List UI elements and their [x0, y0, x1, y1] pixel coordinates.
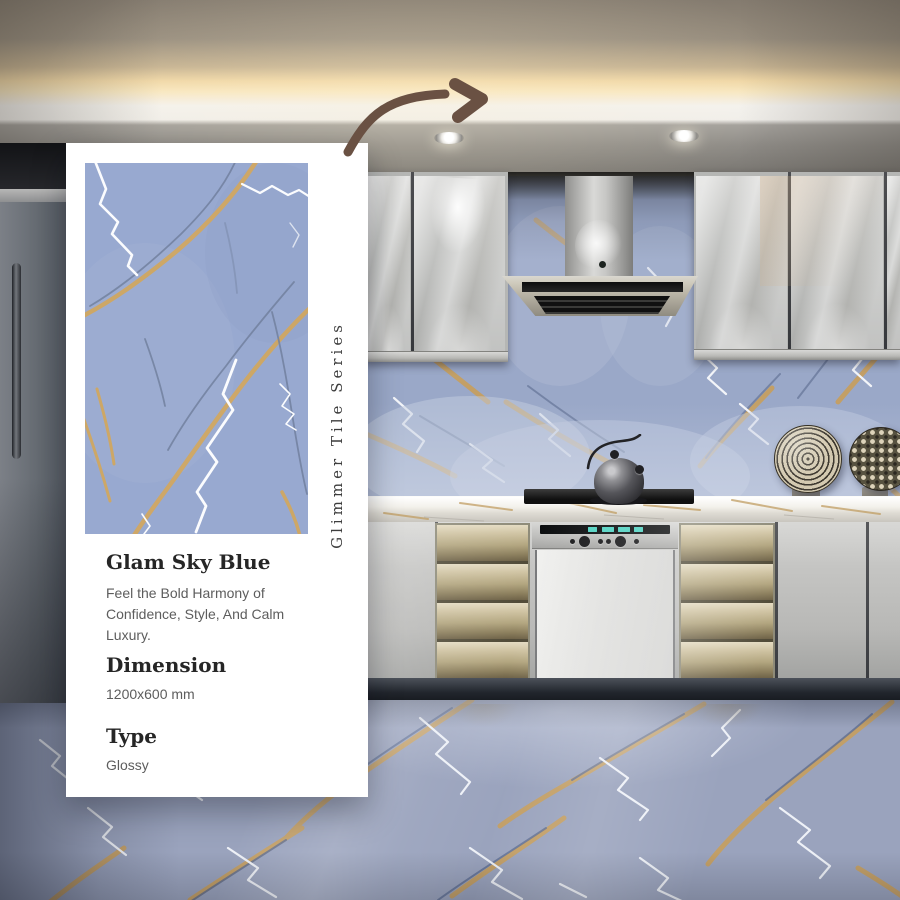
- fridge-handle: [12, 263, 21, 459]
- product-name: Glam Sky Blue: [106, 549, 311, 575]
- cabinet-bottom-rail: [364, 351, 508, 362]
- product-description: Feel the Bold Harmony of Confidence, Sty…: [106, 583, 288, 646]
- type-label: Type: [106, 723, 311, 749]
- cabinet-gloss: [364, 522, 900, 680]
- range-hood-glass-strip: [522, 282, 683, 292]
- kettle: [584, 434, 654, 506]
- tile-swatch-veins: [85, 163, 308, 534]
- cabinet-spotlight-reflection: [416, 176, 496, 293]
- tile-swatch: [85, 163, 308, 534]
- dimension-label: Dimension: [106, 652, 311, 678]
- decor-plate-circles: [774, 425, 842, 493]
- scene: Glimmer Tile Series Glam Sky Blue Feel t…: [0, 0, 900, 900]
- cabinet-warm-reflection: [760, 176, 890, 286]
- product-info: Glam Sky Blue Feel the Bold Harmony of C…: [106, 549, 311, 776]
- base-cabinets: [364, 522, 900, 680]
- dimension-value: 1200x600 mm: [106, 684, 311, 705]
- cabinet-door: [367, 176, 410, 352]
- hood-logo-icon: [599, 261, 606, 268]
- kettle-handle: [584, 434, 654, 506]
- cabinet-bottom-rail: [694, 349, 900, 360]
- range-hood-vent: [528, 296, 676, 314]
- series-label: Glimmer Tile Series: [328, 321, 346, 549]
- recessed-light: [669, 130, 699, 142]
- arrow-icon: [330, 60, 500, 170]
- type-value: Glossy: [106, 755, 311, 776]
- product-card: Glimmer Tile Series Glam Sky Blue Feel t…: [66, 143, 368, 797]
